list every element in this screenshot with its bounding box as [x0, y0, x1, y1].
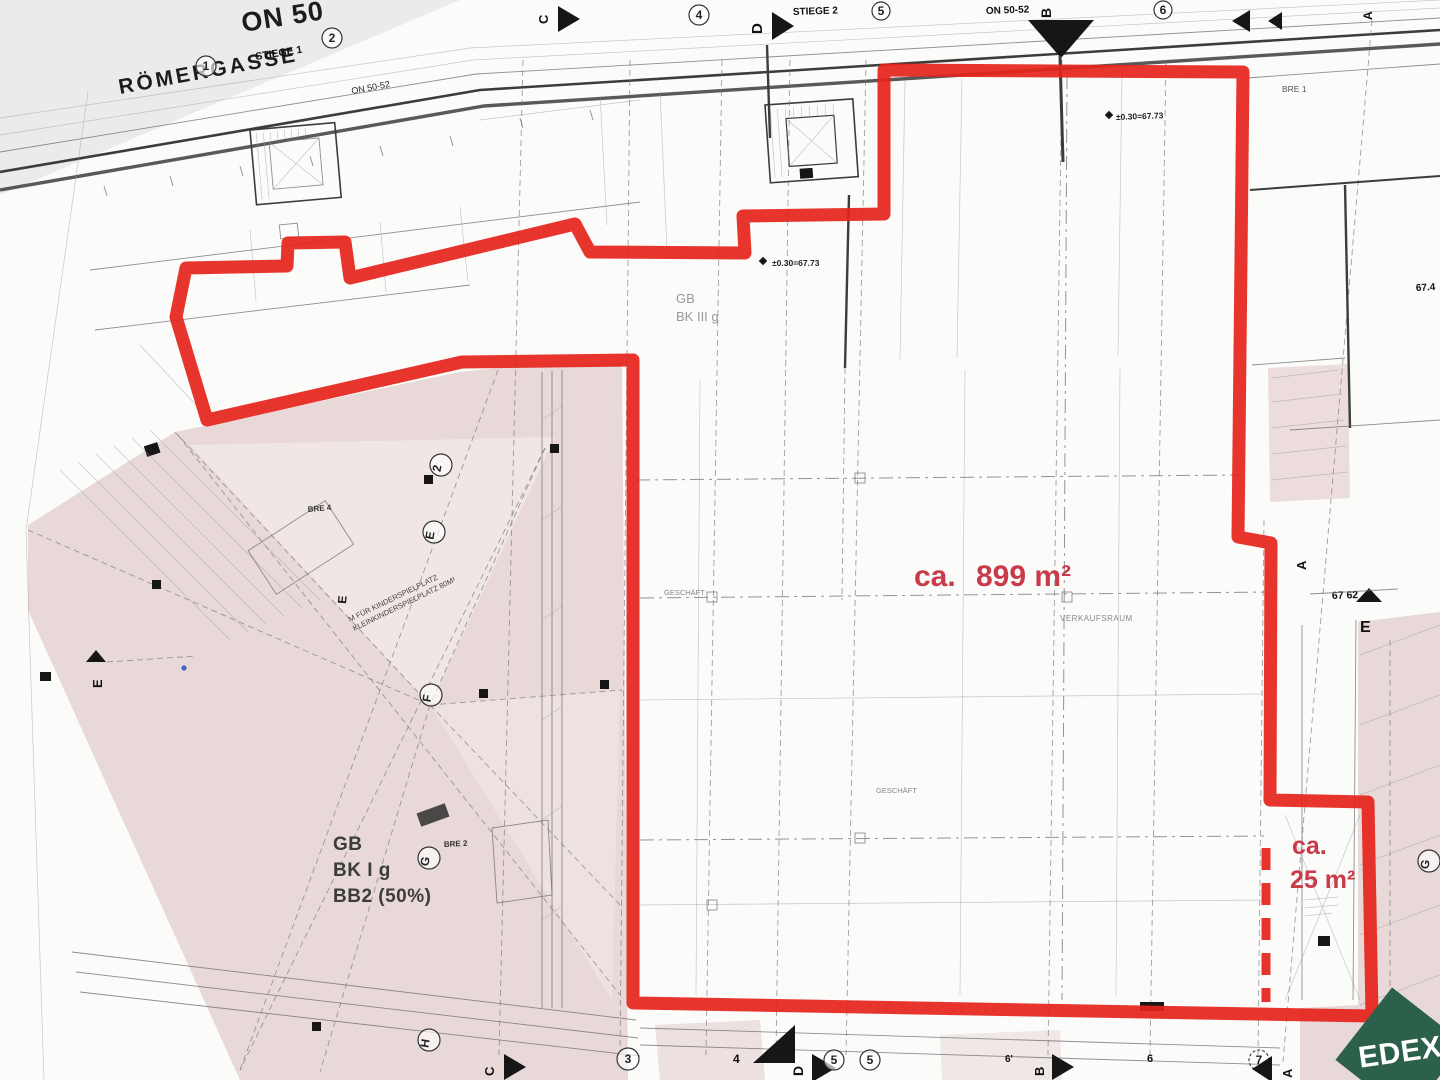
grid-marker-right-g: G — [1417, 850, 1440, 872]
grid-marker-bottom-4: 4 — [733, 1052, 740, 1066]
svg-text:D: D — [790, 1066, 806, 1076]
blue-dot — [181, 665, 186, 670]
svg-text:±0.30=67.73: ±0.30=67.73 — [1116, 110, 1164, 122]
stiege2-label: STIEGE 2 — [793, 5, 839, 18]
svg-text:5: 5 — [831, 1053, 838, 1067]
on5052-label: ON 50-52 — [986, 4, 1030, 17]
grid-marker-bottom-5a: 5 — [824, 1050, 844, 1070]
svg-text:899 m²: 899 m² — [976, 560, 1071, 593]
svg-text:BB2 (50%): BB2 (50%) — [333, 886, 431, 907]
grid-marker-bottom-6p: 6' — [1005, 1054, 1013, 1065]
grid-marker-top-6: 6 — [1154, 1, 1172, 19]
grid-marker-bottom-6: 6 — [1147, 1053, 1153, 1065]
svg-text:C: C — [482, 1066, 497, 1076]
grid-marker-top-4: 4 — [689, 5, 709, 25]
svg-text:BK I g: BK I g — [333, 860, 391, 881]
grid-marker-top-5: 5 — [872, 2, 890, 20]
svg-text:ca.: ca. — [1292, 832, 1327, 860]
svg-text:3: 3 — [625, 1052, 632, 1066]
grid-marker-top-1: 1 — [196, 56, 216, 76]
bre1-label: BRE 1 — [1282, 84, 1307, 94]
floorplan-drawing: ON 50 RÖMERGASSE ON 50-52 STIEGE 1 STIEG… — [0, 0, 1440, 1080]
bre2-label: BRE 2 — [444, 839, 469, 849]
geschaeft-label-2: GESCHÄFT — [876, 786, 917, 795]
svg-text:5: 5 — [878, 4, 885, 18]
grid-marker-court-g: G — [417, 847, 440, 869]
svg-text:C: C — [536, 14, 551, 24]
svg-text:E: E — [1360, 619, 1371, 636]
svg-text:2: 2 — [329, 31, 336, 45]
verkaufsraum-label: VERKAUFSRAUM — [1060, 614, 1133, 623]
svg-text:5: 5 — [867, 1053, 874, 1067]
svg-text:±0.30=67.73: ±0.30=67.73 — [772, 258, 820, 268]
svg-text:25 m²: 25 m² — [1290, 866, 1355, 894]
floorplan-page: ON 50 RÖMERGASSE ON 50-52 STIEGE 1 STIEG… — [0, 0, 1440, 1080]
level-edge-label: 67.4 — [1416, 282, 1436, 294]
area-label-main: ca. 899 m² — [914, 560, 1071, 593]
svg-text:A: A — [1361, 11, 1375, 20]
court-e-label: E — [335, 595, 350, 604]
grid-marker-right-a: A — [1294, 560, 1309, 570]
grid-marker-court-e: E — [422, 521, 445, 543]
svg-text:B: B — [1038, 8, 1054, 18]
grid-marker-bottom-5b: 5 — [860, 1050, 880, 1070]
svg-text:BK III g: BK III g — [676, 309, 719, 324]
svg-text:GB: GB — [676, 291, 695, 306]
grid-marker-court-2: 2 — [430, 454, 452, 476]
grid-marker-top-2: 2 — [322, 28, 342, 48]
svg-text:GB: GB — [333, 834, 363, 855]
grid-marker-court-f: F — [420, 684, 442, 706]
svg-text:1: 1 — [203, 59, 210, 73]
svg-text:E: E — [90, 679, 105, 688]
geschaeft-label-1: GESCHÄFT — [664, 588, 705, 597]
svg-text:4: 4 — [696, 8, 703, 22]
svg-text:ca.: ca. — [914, 560, 956, 593]
grid-marker-court-h: H — [417, 1029, 440, 1051]
grid-marker-bottom-3: 3 — [617, 1048, 639, 1070]
svg-text:A: A — [1280, 1068, 1295, 1078]
svg-text:B: B — [1032, 1067, 1047, 1076]
svg-text:D: D — [749, 23, 766, 34]
svg-text:67 62: 67 62 — [1332, 589, 1359, 602]
svg-text:6: 6 — [1160, 3, 1167, 17]
